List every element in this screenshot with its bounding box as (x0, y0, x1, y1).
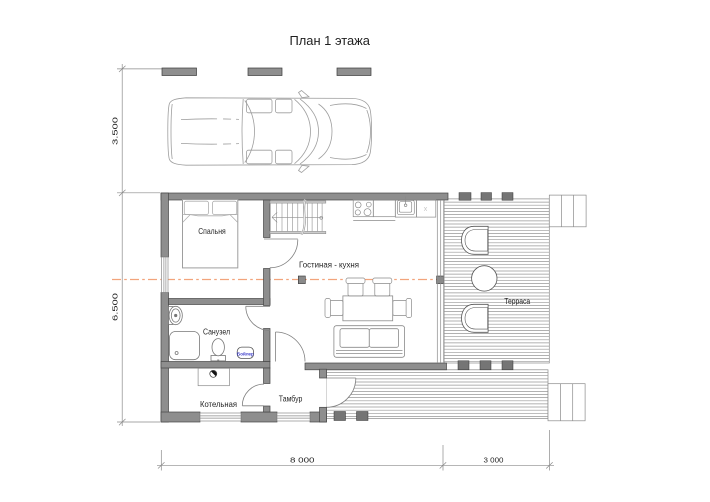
svg-text:6.500: 6.500 (111, 293, 120, 321)
svg-text:Терраса: Терраса (504, 297, 530, 306)
svg-text:x: x (424, 206, 428, 213)
svg-text:Санузел: Санузел (203, 326, 230, 336)
svg-text:3 000: 3 000 (484, 456, 504, 465)
svg-text:8 000: 8 000 (290, 456, 315, 465)
svg-text:Тамбур: Тамбур (279, 394, 303, 404)
svg-text:3.500: 3.500 (111, 117, 120, 145)
svg-text:Бойлер: Бойлер (237, 350, 254, 356)
svg-text:План 1 этажа: План 1 этажа (290, 34, 371, 48)
svg-text:Котельная: Котельная (200, 399, 237, 409)
svg-text:Гостиная - кухня: Гостиная - кухня (299, 259, 359, 269)
svg-text:Спальня: Спальня (198, 226, 226, 236)
